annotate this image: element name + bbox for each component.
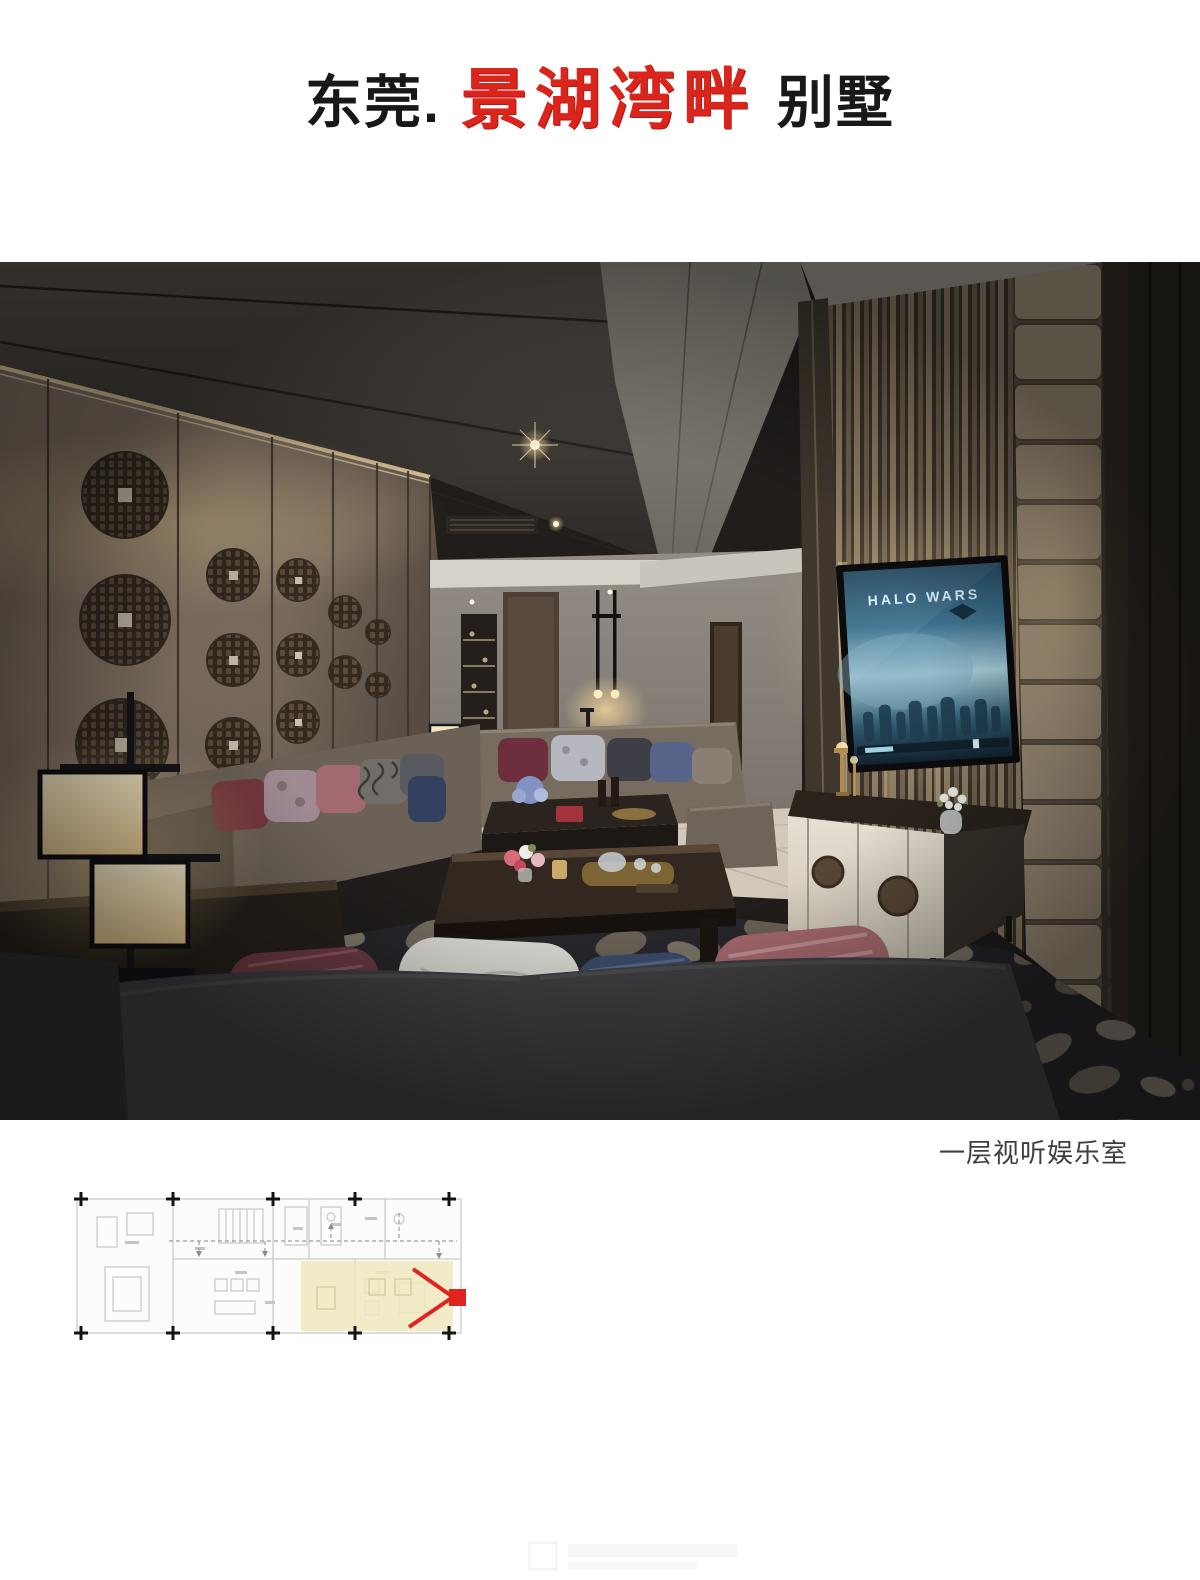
watermark [528, 1538, 768, 1574]
title-city: 东莞. [305, 57, 441, 139]
highlighted-room [301, 1261, 453, 1331]
interior-render-photo: HALO WARS [0, 262, 1200, 1120]
title-project-name: 景湖湾畔 [461, 46, 757, 142]
interior-scene: HALO WARS [0, 262, 1200, 1120]
presentation-page: 东莞. 景湖湾畔 别墅 [0, 0, 1200, 1580]
watermark-logo [528, 1541, 558, 1571]
page-title: 东莞. 景湖湾畔 别墅 [0, 46, 1200, 142]
photo-vignette [0, 262, 1200, 1120]
floor-plan-drawing [68, 1183, 470, 1341]
floor-plan [68, 1183, 470, 1341]
title-suffix: 别墅 [777, 57, 895, 139]
photo-caption: 一层视听娱乐室 [939, 1133, 1128, 1170]
